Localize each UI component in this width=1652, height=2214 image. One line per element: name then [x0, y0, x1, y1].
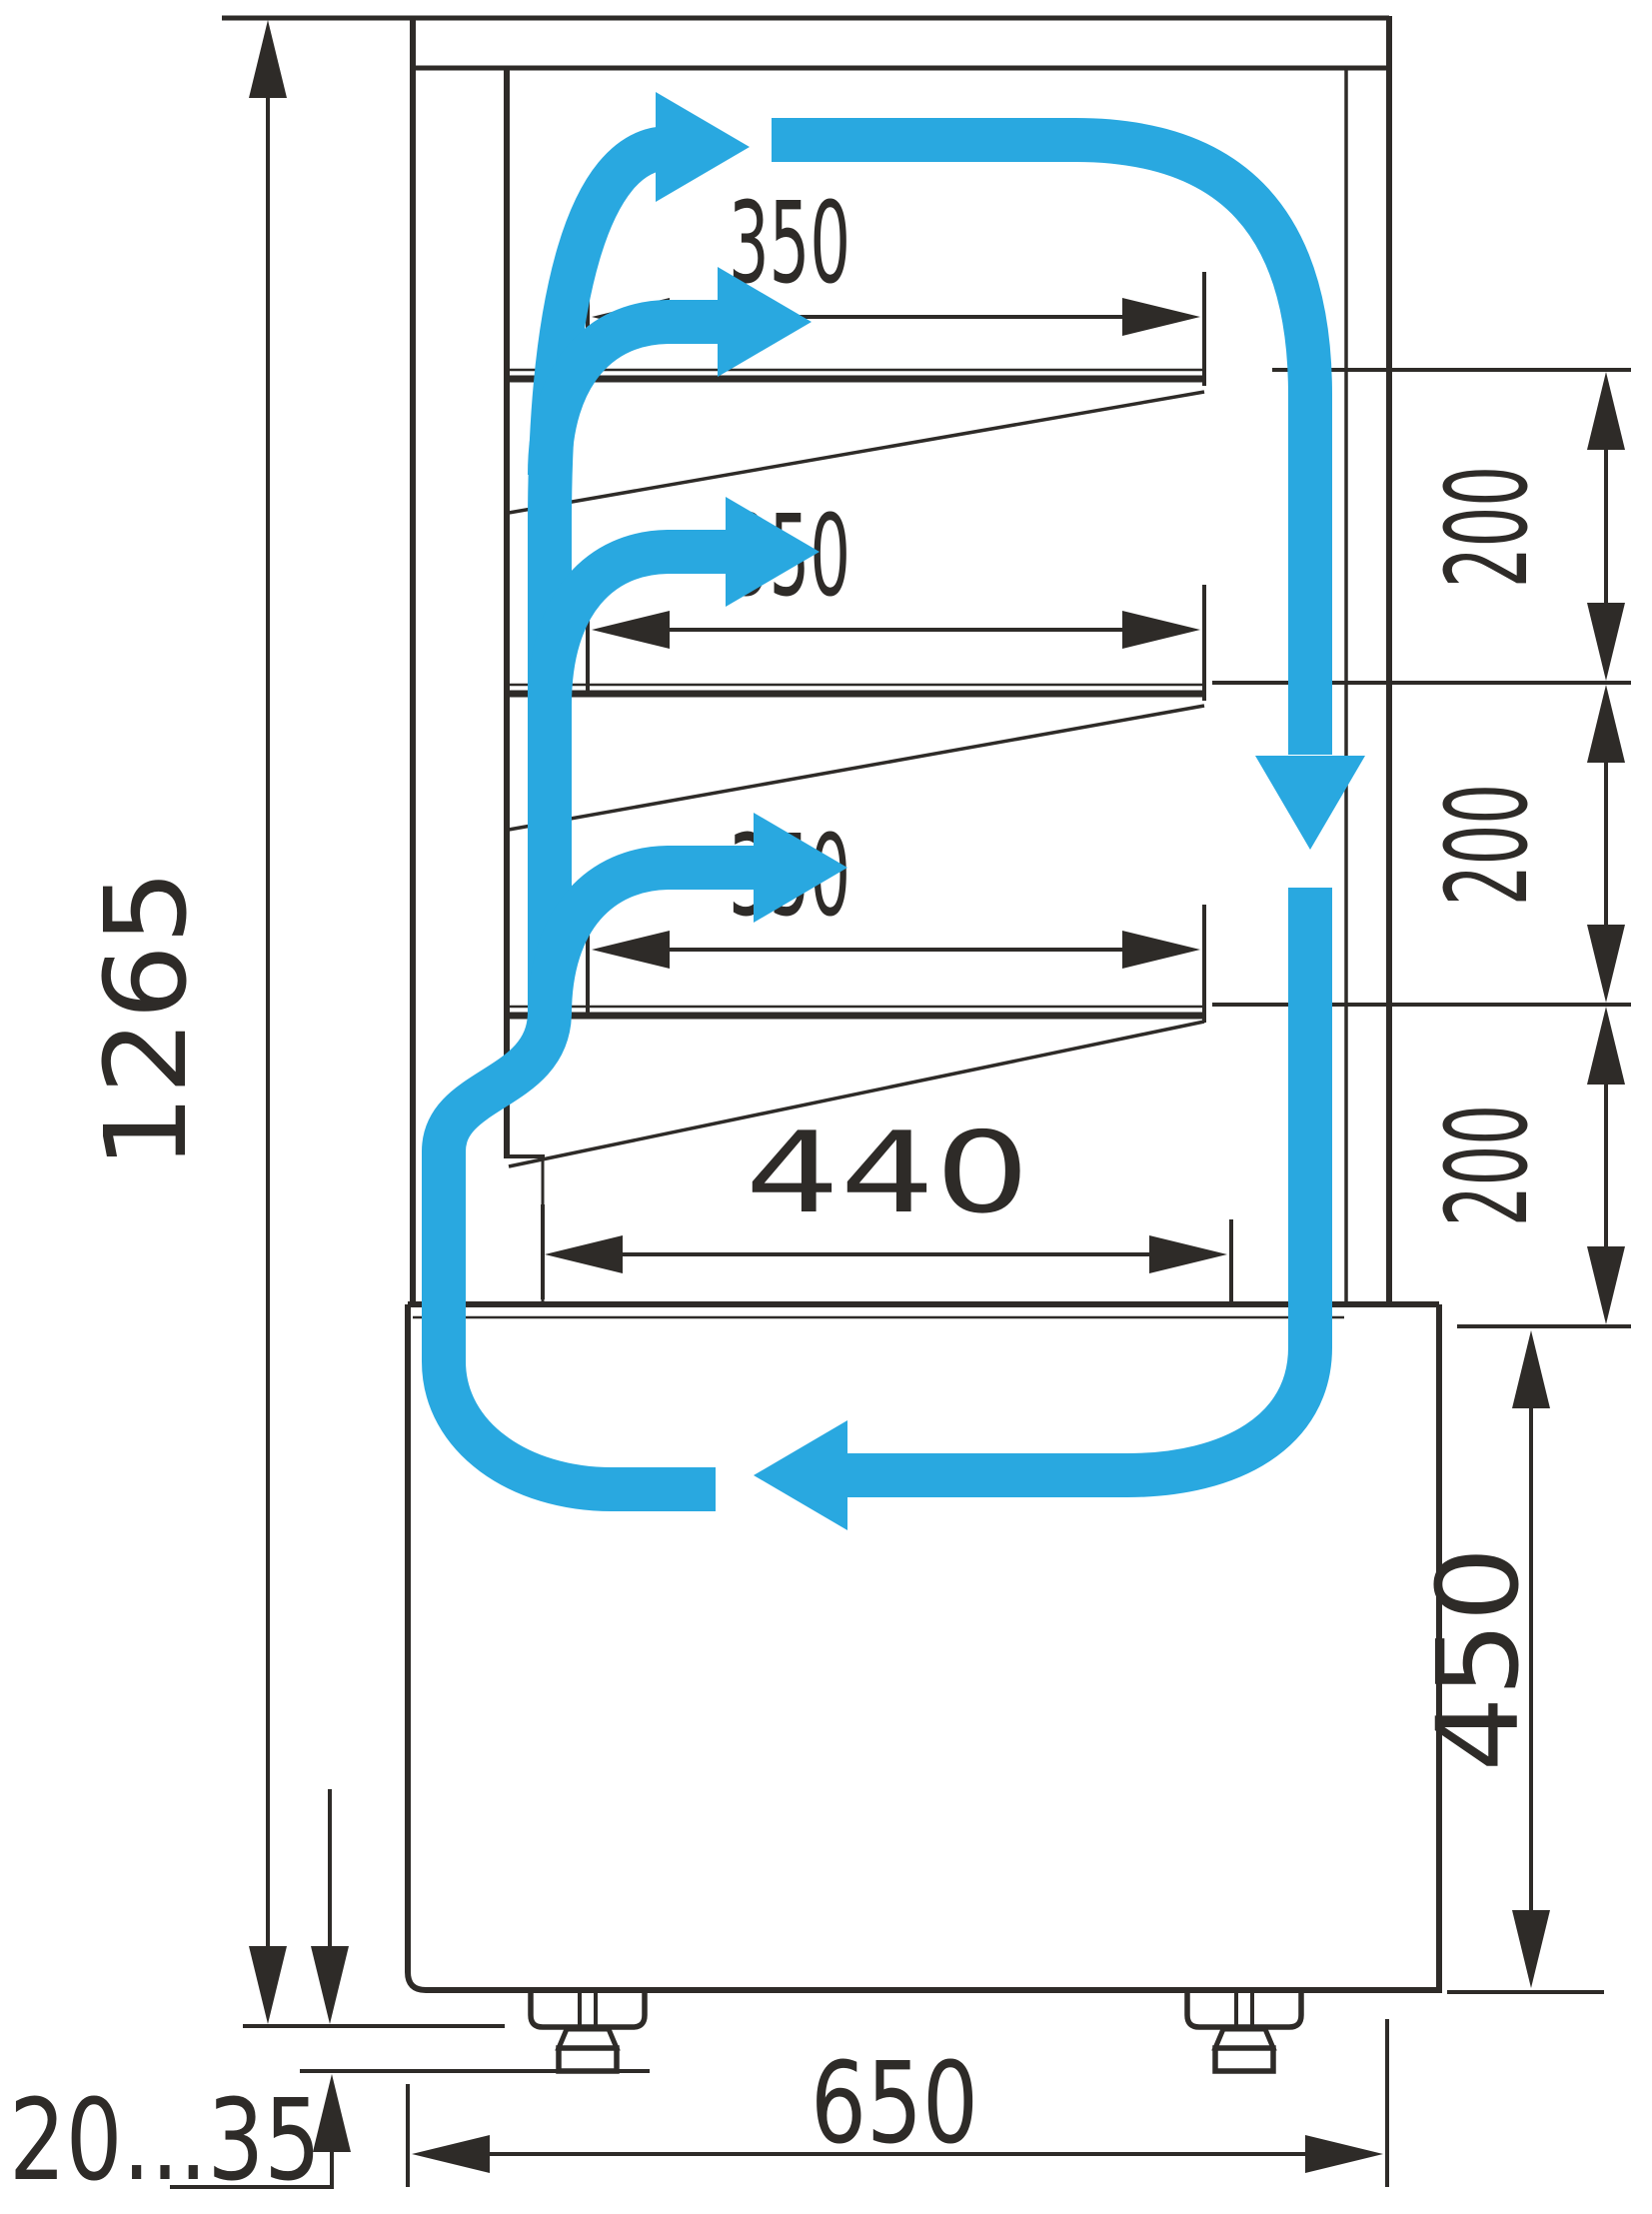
dim-1265-arrow-up	[249, 20, 287, 98]
glass-front	[1346, 16, 1389, 1304]
airflow-loop	[444, 92, 1365, 1530]
dim-label-shelf-spacing-1: 200	[1423, 466, 1553, 588]
dim-shelf-depth-1: 350	[588, 179, 1204, 386]
airflow-shelf-1-path	[550, 322, 724, 475]
foot-right-pad	[1215, 2048, 1273, 2071]
dim-200-1-extensions	[1212, 370, 1631, 683]
dim-200-1-arrow-up	[1587, 372, 1625, 450]
canopy	[222, 18, 1389, 68]
dim-200-2-arrow-down	[1587, 925, 1625, 1003]
dim-label-overall-depth: 650	[811, 2039, 978, 2169]
foot-right-bracket	[1187, 1990, 1301, 2027]
foot-right-screw	[1236, 1990, 1252, 2027]
foot-left-screw	[580, 1990, 596, 2027]
shelf-2	[509, 685, 1206, 694]
adjustable-foot-left	[531, 1990, 645, 2071]
dim-overall-depth: 650	[408, 2019, 1387, 2187]
dim-650-arrow-left	[412, 2135, 490, 2173]
dim-shelf-spacing-1: 200	[1212, 370, 1631, 683]
dim-base-height: 450	[1414, 1330, 1604, 1992]
foot-right-neck	[1215, 2029, 1273, 2048]
dim-440-arrow-left	[545, 1235, 623, 1273]
dim-label-shelf-spacing-3: 200	[1423, 1105, 1553, 1226]
dim-350-2-extensions	[588, 585, 1204, 701]
adjustable-foot-right	[1187, 1990, 1301, 2071]
dim-1265-arrow-down	[249, 1946, 287, 2024]
dim-leg-adjustment: 20...35	[9, 1789, 650, 2206]
display-case-section-drawing: 1265 350 350 350 440 200	[0, 0, 1652, 2214]
dim-label-bottom-shelf-depth: 440	[746, 1108, 1030, 1238]
foot-left-bracket	[531, 1990, 645, 2027]
airflow-bottom-return-arrow	[754, 1420, 847, 1530]
dim-overall-height: 1265	[82, 20, 505, 2026]
dim-450-arrow-up	[1512, 1330, 1550, 1408]
dim-2035-arrow-down	[311, 1946, 349, 2024]
airflow-front-down-arrow	[1255, 756, 1365, 850]
airflow-front-descent-path	[772, 140, 1310, 755]
dim-shelf-depth-2: 350	[588, 492, 1204, 701]
dim-shelf-spacing-2: 200	[1212, 685, 1631, 1005]
dim-350-3-arrow-right	[1122, 931, 1200, 969]
foot-left-neck	[559, 2029, 617, 2048]
foot-left-pad	[559, 2048, 617, 2071]
shelf-3	[509, 1007, 1206, 1016]
dim-200-3-arrow-down	[1587, 1246, 1625, 1324]
dim-shelf-spacing-3: 200	[1423, 1007, 1631, 1326]
shelf-tilt-board-2	[509, 706, 1204, 830]
shelf-tilt-board-1	[509, 392, 1204, 513]
dim-label-overall-height: 1265	[82, 870, 212, 1169]
shelf-1	[509, 370, 1206, 379]
dim-350-2-arrow-left	[592, 611, 670, 649]
cabinet-structure	[222, 16, 1439, 2071]
dim-shelf-depth-3: 350	[588, 812, 1204, 1023]
dim-450-arrow-down	[1512, 1910, 1550, 1988]
dim-350-1-arrow-right	[1122, 298, 1200, 336]
dim-350-3-arrow-left	[592, 931, 670, 969]
dim-label-leg-adjustment: 20...35	[9, 2076, 321, 2206]
dim-200-1-arrow-down	[1587, 603, 1625, 681]
dim-440-arrow-right	[1149, 1235, 1227, 1273]
dim-200-2-arrow-up	[1587, 685, 1625, 763]
dim-350-3-extensions	[588, 905, 1204, 1023]
dim-200-3-arrow-up	[1587, 1007, 1625, 1085]
dim-label-shelf-spacing-2: 200	[1423, 784, 1553, 906]
dim-650-arrow-right	[1305, 2135, 1383, 2173]
dim-350-2-arrow-right	[1122, 611, 1200, 649]
dim-label-base-height: 450	[1414, 1547, 1544, 1772]
